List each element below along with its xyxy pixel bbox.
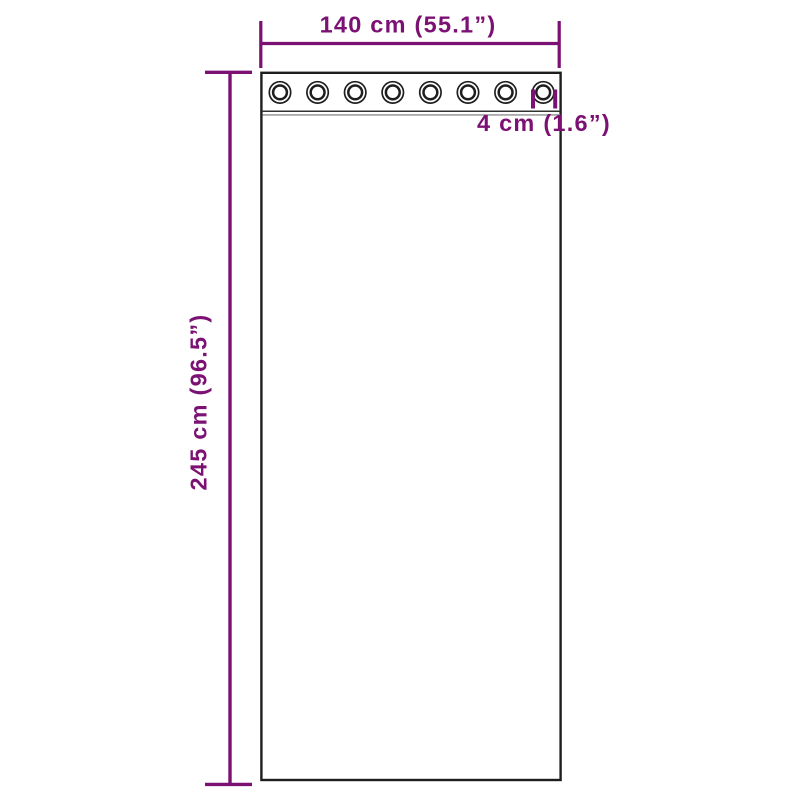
svg-text:140 cm (55.1”): 140 cm (55.1”) bbox=[320, 12, 497, 38]
svg-text:245 cm (96.5”): 245 cm (96.5”) bbox=[186, 314, 212, 491]
svg-text:4 cm (1.6”): 4 cm (1.6”) bbox=[477, 110, 611, 136]
